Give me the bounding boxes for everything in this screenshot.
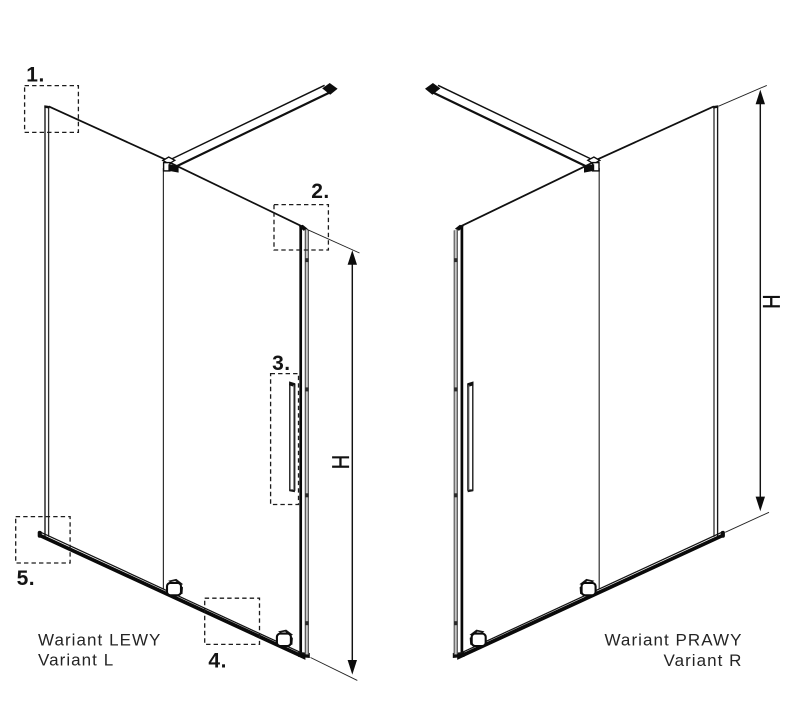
svg-text:1.: 1. bbox=[26, 63, 45, 86]
svg-text:2.: 2. bbox=[311, 180, 330, 203]
svg-text:5.: 5. bbox=[17, 567, 36, 590]
svg-text:3.: 3. bbox=[272, 352, 291, 375]
svg-text:Wariant PRAWY: Wariant PRAWY bbox=[604, 630, 742, 649]
svg-text:4.: 4. bbox=[208, 649, 227, 672]
svg-text:Variant L: Variant L bbox=[38, 650, 114, 669]
svg-text:Wariant LEWY: Wariant LEWY bbox=[38, 631, 161, 650]
svg-text:Variant R: Variant R bbox=[663, 651, 742, 670]
